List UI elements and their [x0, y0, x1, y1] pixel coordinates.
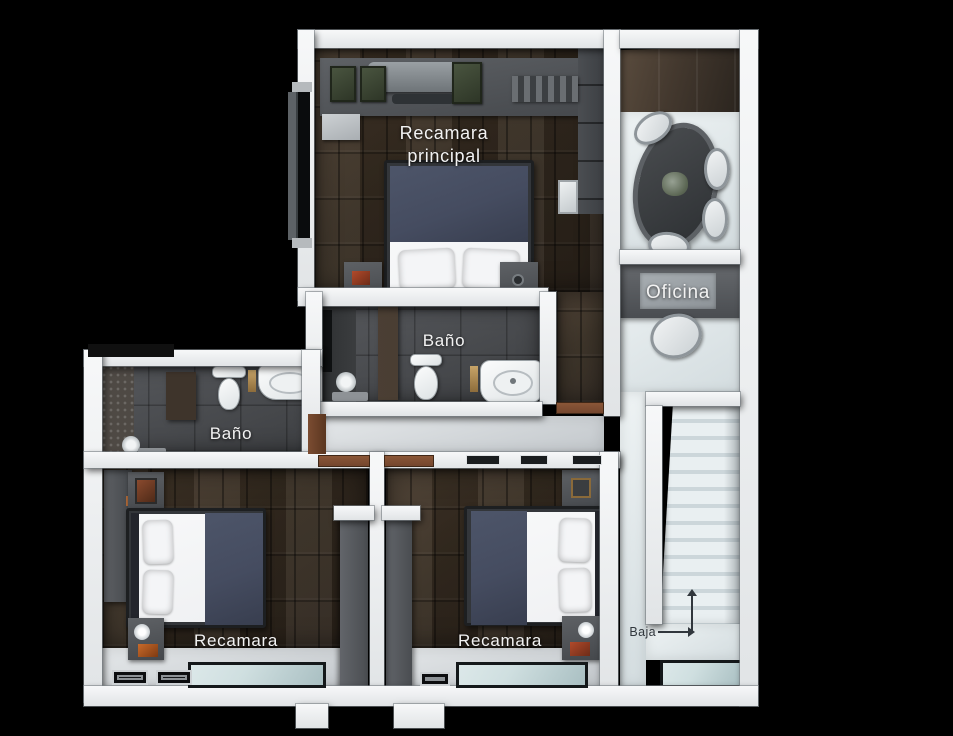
window-cap-bottom: [292, 238, 312, 248]
decor-book-red: [570, 642, 590, 656]
toilet2-bowl: [218, 378, 240, 410]
master-window-sill: [288, 92, 296, 240]
transom-vent-3: [572, 455, 602, 465]
midbath-bottom-wall: [306, 402, 542, 416]
right-pillow-2: [558, 567, 592, 612]
right-bedroom-door-threshold: [384, 455, 434, 467]
ac-vent: [392, 94, 454, 104]
divider-wardrobe-left: [340, 520, 368, 688]
closet-rod-beam: [88, 344, 174, 357]
wall-art-1: [330, 66, 356, 102]
toilet-tank: [410, 354, 442, 366]
closet-shelf-slats: [512, 76, 578, 102]
label-master-bedroom: Recamara principal: [384, 122, 504, 167]
vanity-sink: [480, 360, 544, 404]
window-cap-top: [292, 82, 312, 92]
left-bed-blanket: [205, 513, 263, 625]
decor-art: [135, 478, 157, 504]
label-stairs-down: Baja: [612, 625, 656, 641]
table-plant: [662, 172, 688, 196]
floor-plan: Recamara principal Baño Oficina Baño Rec…: [0, 0, 953, 736]
label-office: Oficina: [640, 281, 716, 305]
bathroom2-cabinet: [166, 372, 196, 420]
right-balcony-window: [456, 662, 588, 688]
label-secondary-bathroom: Baño: [189, 423, 273, 444]
left-bed: [126, 508, 266, 628]
table-lamp: [134, 624, 150, 640]
right-nightstand-top: [562, 470, 600, 510]
divider-cap-right: [382, 506, 420, 520]
master-wardrobe: [578, 48, 604, 214]
bathroom-cabinet: [378, 306, 398, 400]
bedroom-divider-wall: [370, 452, 384, 692]
left-nightstand-bottom: [128, 618, 164, 660]
right-outer-wall: [740, 30, 758, 706]
stairs-arrow-up-head: [687, 589, 697, 596]
left-nightstand-top: [128, 472, 164, 510]
towel-rack2-gold: [248, 370, 256, 392]
divider-cap-left: [334, 506, 374, 520]
towel-rack-gold: [470, 366, 478, 392]
floor-register-2: [156, 670, 192, 685]
left-pillow-1: [142, 519, 174, 564]
bottom-pier-2: [394, 704, 444, 728]
master-bench: [322, 114, 360, 140]
hall-cabinet: [308, 414, 326, 454]
office-chair-3: [702, 198, 728, 240]
decor-frame: [571, 478, 591, 498]
dressing-nook-floor: [556, 292, 604, 404]
stairwell-left-wall: [646, 406, 662, 624]
right-bed-blanket: [471, 511, 527, 625]
left-bedroom-door-threshold: [318, 455, 370, 467]
master-window: [296, 86, 310, 244]
master-pillow-left: [398, 248, 456, 291]
wall-art-2: [360, 66, 386, 102]
stairwell-top-wall: [646, 392, 740, 406]
bottom-pier-1: [296, 704, 328, 728]
decor-book-orange: [138, 644, 158, 657]
office-chair-2: [704, 148, 730, 190]
master-office-wall: [604, 30, 620, 416]
transom-vent-2: [520, 455, 548, 465]
label-right-bedroom: Recamara: [442, 630, 558, 651]
wall-art-3: [452, 62, 482, 104]
decor-clock: [512, 274, 524, 286]
stairwell-glass-panel: [660, 660, 744, 688]
shower-bench: [332, 392, 368, 401]
shower-head: [336, 372, 356, 392]
left-balcony-window: [188, 662, 326, 688]
left-pillow-2: [142, 569, 174, 614]
transom-vent-1: [466, 455, 500, 465]
master-top-wall: [298, 30, 620, 48]
table-lamp-2: [578, 622, 594, 638]
right-bedroom-right-wall: [600, 452, 618, 702]
stairs-arrow-horizontal: [658, 631, 688, 633]
divider-wardrobe-right: [386, 520, 412, 688]
nook-door-threshold: [556, 402, 604, 414]
left-outer-wall: [84, 350, 102, 702]
office-divider-wall: [620, 250, 740, 264]
label-main-bathroom: Baño: [402, 330, 486, 351]
floor-mirror: [558, 180, 578, 214]
faucet: [510, 378, 516, 384]
left-headboard: [131, 513, 139, 623]
right-nightstand-bottom: [562, 616, 600, 660]
label-left-bedroom: Recamara: [178, 630, 294, 651]
master-bed-blanket: [390, 166, 528, 242]
floor-register-1: [112, 670, 148, 685]
stairs-arrow-vertical: [691, 596, 693, 632]
hallway-floor: [322, 416, 604, 452]
master-bottom-wall: [298, 288, 548, 306]
office-ceiling-panel: [620, 46, 740, 120]
toilet2-tank: [212, 366, 246, 378]
right-pillow-1: [558, 517, 592, 562]
right-bed: [464, 506, 604, 626]
toilet-bowl: [414, 366, 438, 400]
decor-book: [352, 271, 370, 285]
stair-hall-floor: [620, 392, 646, 686]
floor-register-3: [420, 672, 450, 686]
bottom-outer-wall: [84, 686, 758, 706]
nook-left-wall: [540, 292, 556, 404]
shower-glass-panel: [322, 310, 332, 372]
office-top-wall: [620, 30, 758, 48]
